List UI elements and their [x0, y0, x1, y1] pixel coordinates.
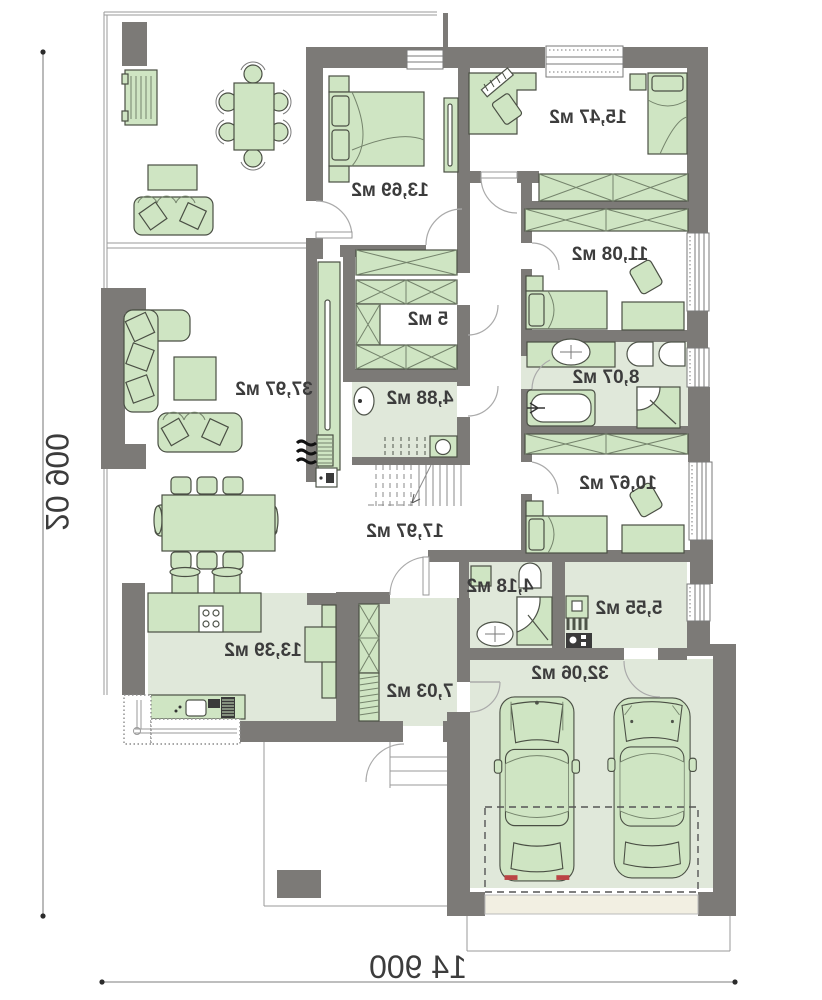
svg-text:14 900: 14 900: [369, 949, 467, 985]
svg-text:20 900: 20 900: [39, 433, 75, 531]
svg-text:5,55 м2: 5,55 м2: [596, 598, 663, 619]
svg-text:10,67 м2: 10,67 м2: [579, 473, 656, 494]
svg-text:7,03 м2: 7,03 м2: [387, 681, 454, 702]
svg-text:5 м2: 5 м2: [408, 309, 448, 330]
svg-text:17,97 м2: 17,97 м2: [366, 521, 443, 542]
svg-text:8,07 м2: 8,07 м2: [573, 367, 640, 388]
svg-text:37,97 м2: 37,97 м2: [235, 379, 312, 400]
svg-text:4,18 м2: 4,18 м2: [467, 576, 534, 597]
svg-text:15,47 м2: 15,47 м2: [549, 107, 626, 128]
svg-text:13,39 м2: 13,39 м2: [224, 640, 301, 661]
svg-text:13,69 м2: 13,69 м2: [351, 180, 428, 201]
svg-text:32,06 м2: 32,06 м2: [531, 663, 608, 684]
svg-text:4,88 м2: 4,88 м2: [387, 388, 454, 409]
svg-text:11,08 м2: 11,08 м2: [572, 244, 648, 265]
